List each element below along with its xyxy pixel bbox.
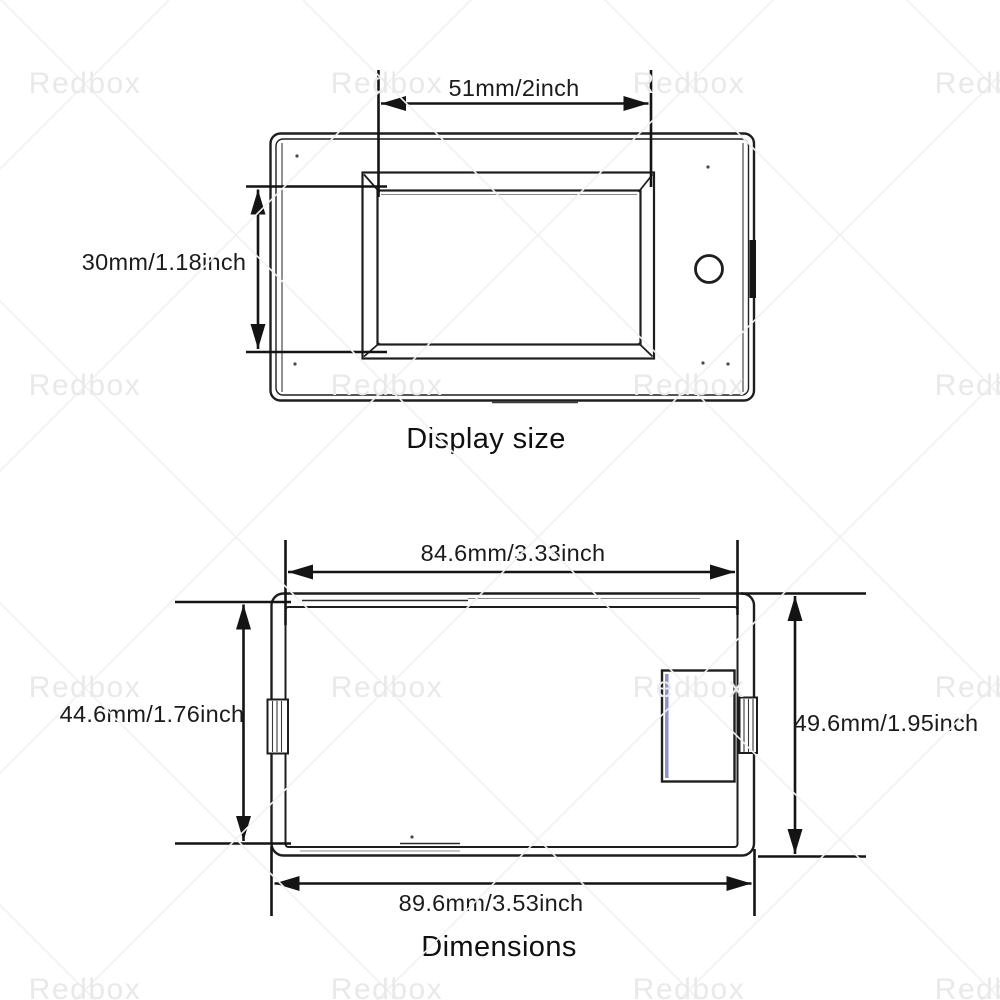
watermark-text: Redbox (331, 671, 443, 704)
watermark-text: Redbox (935, 369, 1000, 402)
watermark-text: Redbox (935, 973, 1000, 1000)
watermark-text: Redbox (633, 67, 745, 100)
watermark-diagonal-lines (0, 0, 1000, 1000)
watermark-text: Redbox (331, 973, 443, 1000)
technical-drawing: 51mm/2inch 30mm/1.18inch Display size (0, 0, 1000, 1000)
watermark-layer: Redbox Redbox Redbox Redbox Redbox Redbo… (0, 0, 1000, 1000)
watermark-text: Redbox (331, 67, 443, 100)
watermark-text: Redbox (29, 369, 141, 402)
watermark-text: Redbox (331, 369, 443, 402)
watermark-text: Redbox (633, 973, 745, 1000)
watermark-text: Redbox (29, 67, 141, 100)
watermark-text: Redbox (29, 671, 141, 704)
watermark-text: Redbox (935, 671, 1000, 704)
watermark-text: Redbox (29, 973, 141, 1000)
watermark-text: Redbox (633, 369, 745, 402)
watermark-text: Redbox (935, 67, 1000, 100)
watermark-text: Redbox (633, 671, 745, 704)
